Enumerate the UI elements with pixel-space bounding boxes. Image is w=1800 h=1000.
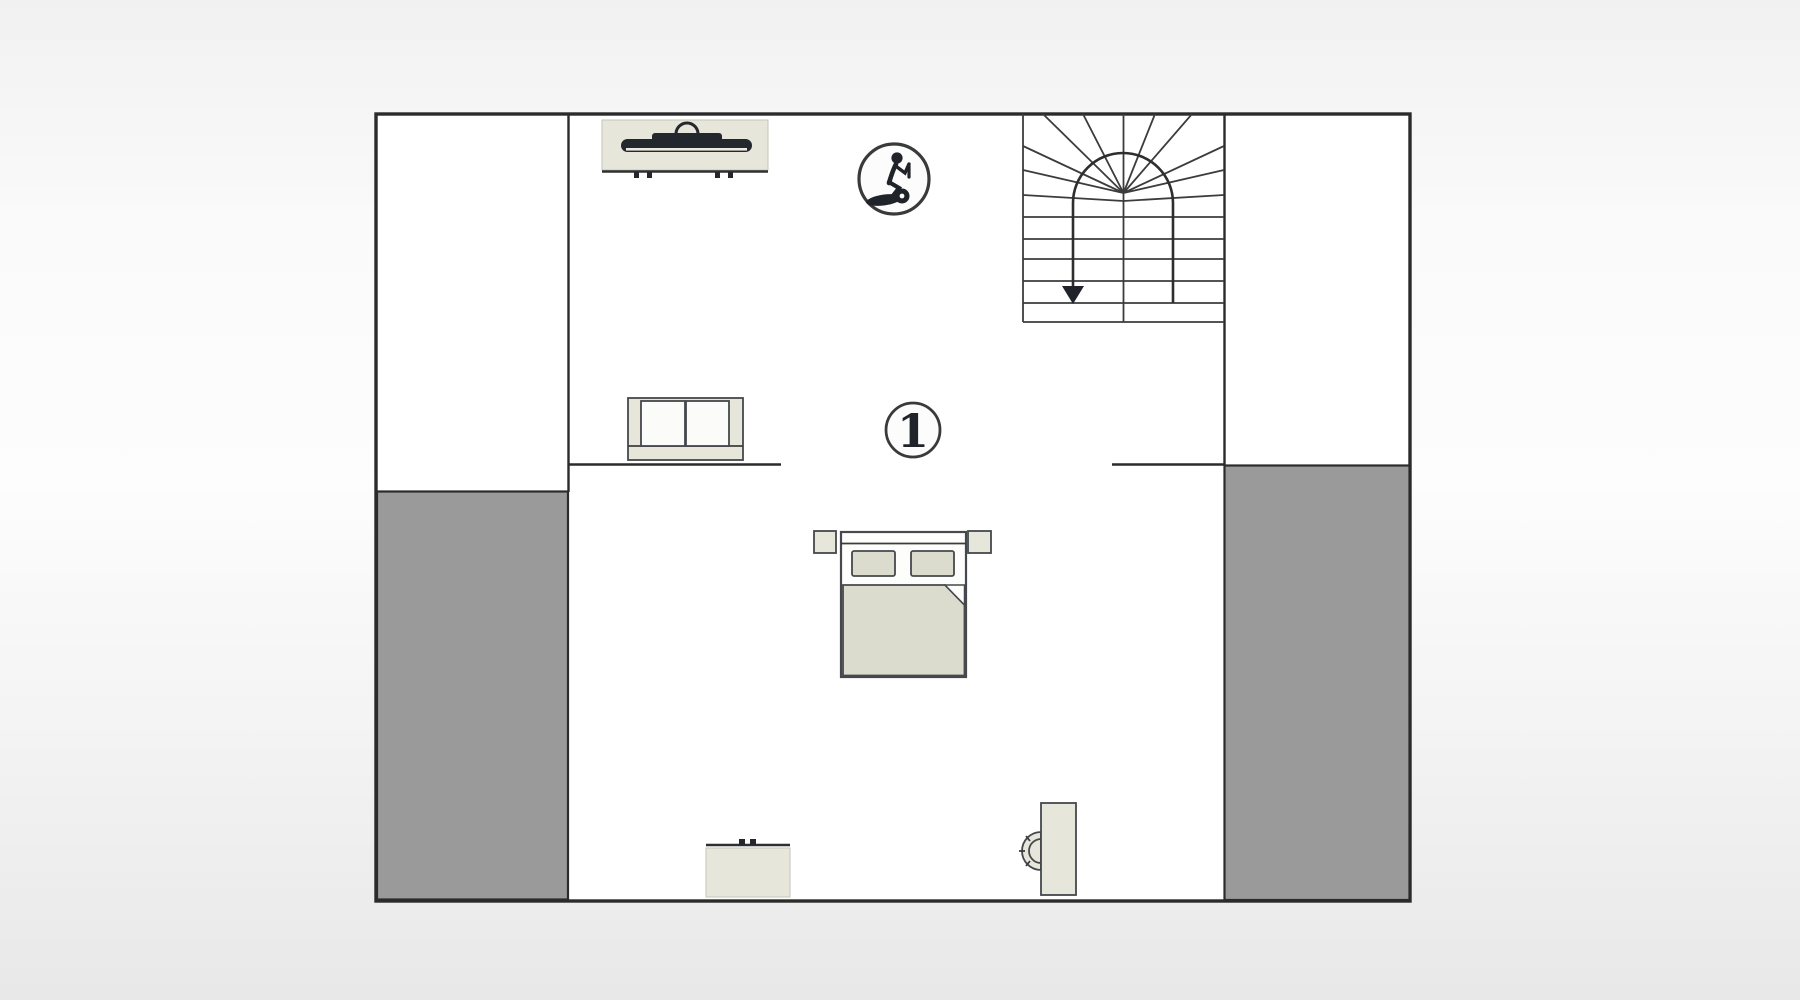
- double-bed: [814, 531, 991, 677]
- bed-pillow-left: [852, 551, 895, 576]
- exercise-bike-badge: [859, 144, 929, 214]
- dresser-knob-left: [739, 839, 745, 845]
- sofa-cushion-right: [686, 401, 729, 446]
- dresser-knob-right: [750, 839, 756, 845]
- room-number-label: 1: [897, 404, 929, 458]
- floor-plan-canvas: 1: [0, 0, 1800, 1000]
- sofa: [628, 398, 743, 460]
- dresser: [706, 839, 790, 897]
- tv-sideboard: [602, 120, 768, 178]
- roof-area-left: [377, 492, 568, 900]
- roof-area-right: [1225, 466, 1410, 901]
- desk: [1041, 803, 1076, 895]
- room-number-badge: 1: [886, 403, 940, 458]
- nightstand-right: [968, 531, 991, 553]
- bed-pillow-right: [911, 551, 954, 576]
- nightstand-left: [814, 531, 836, 553]
- bed-duvet: [843, 585, 965, 676]
- dresser-body: [706, 848, 790, 897]
- sofa-cushion-left: [641, 401, 685, 446]
- floor-plan-page: 1: [0, 0, 1800, 1000]
